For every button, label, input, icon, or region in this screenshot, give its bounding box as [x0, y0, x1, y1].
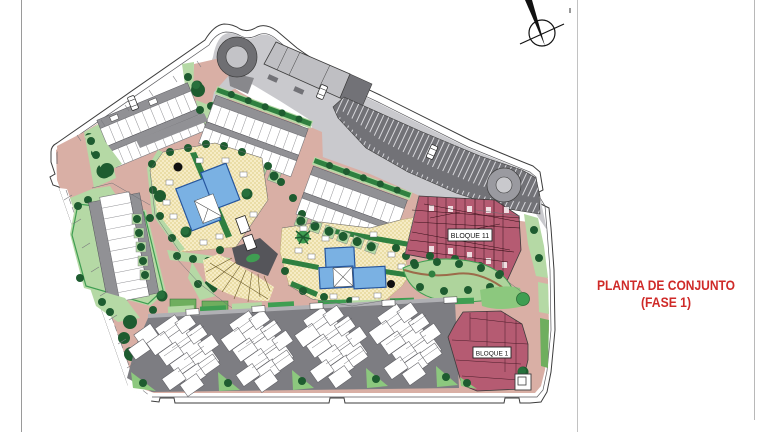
svg-text:BLOQUE 1: BLOQUE 1: [476, 351, 509, 358]
svg-text:(FASE 1): (FASE 1): [641, 294, 691, 310]
svg-text:PLANTA DE CONJUNTO: PLANTA DE CONJUNTO: [597, 277, 735, 293]
svg-text:BLOQUE 11: BLOQUE 11: [451, 233, 489, 240]
